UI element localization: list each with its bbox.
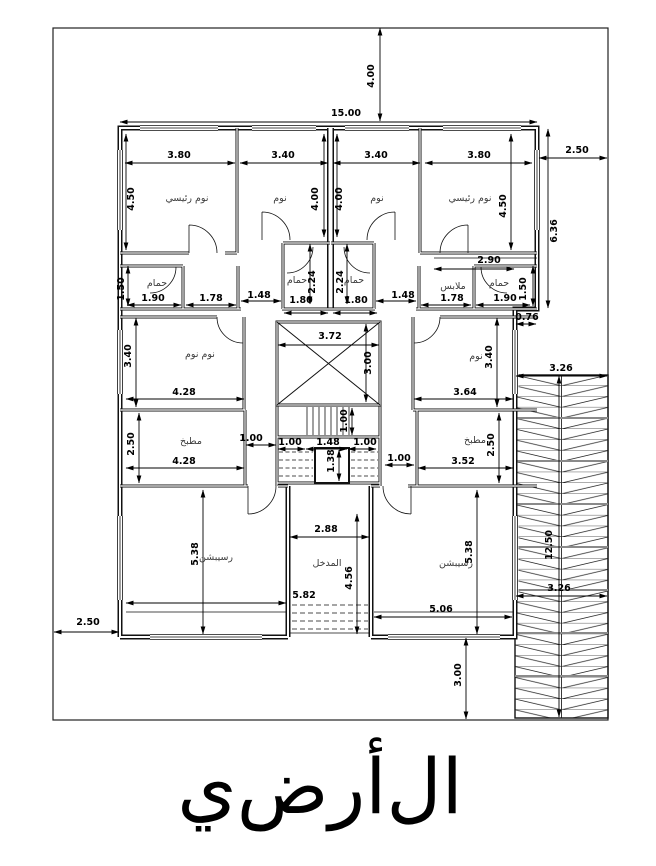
dimension-label: 6.36 xyxy=(549,219,560,243)
dimension-label: 3.40 xyxy=(271,150,295,161)
dimension-label: 1.78 xyxy=(440,293,464,304)
dimension-label: 15.00 xyxy=(331,108,361,119)
room-label: نوم xyxy=(273,193,286,204)
dimension-label: 12.50 xyxy=(544,530,555,560)
floor-plan: 4.0015.002.506.363.803.403.403.804.504.0… xyxy=(0,0,656,866)
room-label: حمام xyxy=(287,275,307,286)
dimension-label: 3.64 xyxy=(453,387,477,398)
room-label: نوم رئيسي xyxy=(166,193,209,204)
floor-plan-sheet: { "title": { "text": "ال\u200cأرض\u200cي… xyxy=(0,0,656,866)
dimension-label: 3.52 xyxy=(451,456,474,467)
dimension-label: 4.00 xyxy=(366,64,377,88)
dimension-label: 1.90 xyxy=(141,293,165,304)
room-label: نوم رئيسي xyxy=(449,193,492,204)
dimension-label: 1.00 xyxy=(239,433,263,444)
room-label: رسيبشن xyxy=(439,558,473,569)
dimension-label: 0.76 xyxy=(515,312,539,323)
dimension-label: 3.26 xyxy=(549,363,573,374)
room-label: حمام xyxy=(344,275,364,286)
room-label: المدخل xyxy=(312,558,341,569)
dimension-label: 3.40 xyxy=(123,344,134,368)
dimension-label: 1.78 xyxy=(199,293,223,304)
dimension-label: 2.50 xyxy=(126,432,137,456)
dimension-label: 1.80 xyxy=(289,295,313,306)
dimension-label: 3.40 xyxy=(484,345,495,369)
dimension-label: 1.80 xyxy=(344,295,368,306)
room-label: ملابس xyxy=(440,281,466,292)
dimension-label: 2.50 xyxy=(76,617,100,628)
dimension-label: 3.00 xyxy=(363,351,374,375)
dimension-label: 1.00 xyxy=(339,409,350,433)
dimension-label: 1.00 xyxy=(387,453,411,464)
dimension-label: 2.50 xyxy=(565,145,589,156)
room-label: نوم xyxy=(469,351,482,362)
dimension-label: 1.48 xyxy=(316,437,340,448)
plan-title: ال‌أرض‌ي xyxy=(0,742,640,831)
dimension-label: 1.50 xyxy=(116,277,127,301)
dimension-label: 1.00 xyxy=(353,437,377,448)
dimension-label: 3.80 xyxy=(167,150,191,161)
dimension-label: 2.24 xyxy=(307,270,318,294)
room-label: مطبخ xyxy=(464,435,486,446)
dimension-label: 1.38 xyxy=(326,449,337,473)
dimension-label: 2.50 xyxy=(486,433,497,457)
dimension-label: 1.90 xyxy=(493,293,517,304)
room-label: حمام xyxy=(147,278,167,289)
dimension-label: 4.28 xyxy=(172,456,196,467)
dimension-label: 1.48 xyxy=(391,290,415,301)
dimension-label: 5.06 xyxy=(429,604,453,615)
room-label: حمام xyxy=(489,278,509,289)
dimension-label: 4.56 xyxy=(344,566,355,590)
room-label: رسيبشن xyxy=(199,552,233,563)
dimension-label: 1.50 xyxy=(518,277,529,301)
room-label: نوم نوم xyxy=(185,349,215,360)
dimension-label: 2.88 xyxy=(314,524,338,535)
dimension-label: 4.00 xyxy=(310,187,321,211)
dimension-label: 3.72 xyxy=(318,331,341,342)
dimension-label: 2.90 xyxy=(477,255,501,266)
planting-hatch xyxy=(515,375,608,718)
dimension-label: 3.80 xyxy=(467,150,491,161)
dimension-label: 3.26 xyxy=(547,583,571,594)
room-label: نوم xyxy=(370,193,383,204)
dimension-label: 5.82 xyxy=(292,590,315,601)
room-label: مطبخ xyxy=(180,436,202,447)
dimension-label: 4.00 xyxy=(334,187,345,211)
dimension-label: 1.00 xyxy=(278,437,302,448)
dimension-label: 4.50 xyxy=(126,187,137,211)
dimension-label: 3.40 xyxy=(364,150,388,161)
dimension-label: 1.48 xyxy=(247,290,271,301)
dimension-label: 4.50 xyxy=(498,194,509,218)
dimension-label: 4.28 xyxy=(172,387,196,398)
dimension-label: 3.00 xyxy=(453,663,464,687)
